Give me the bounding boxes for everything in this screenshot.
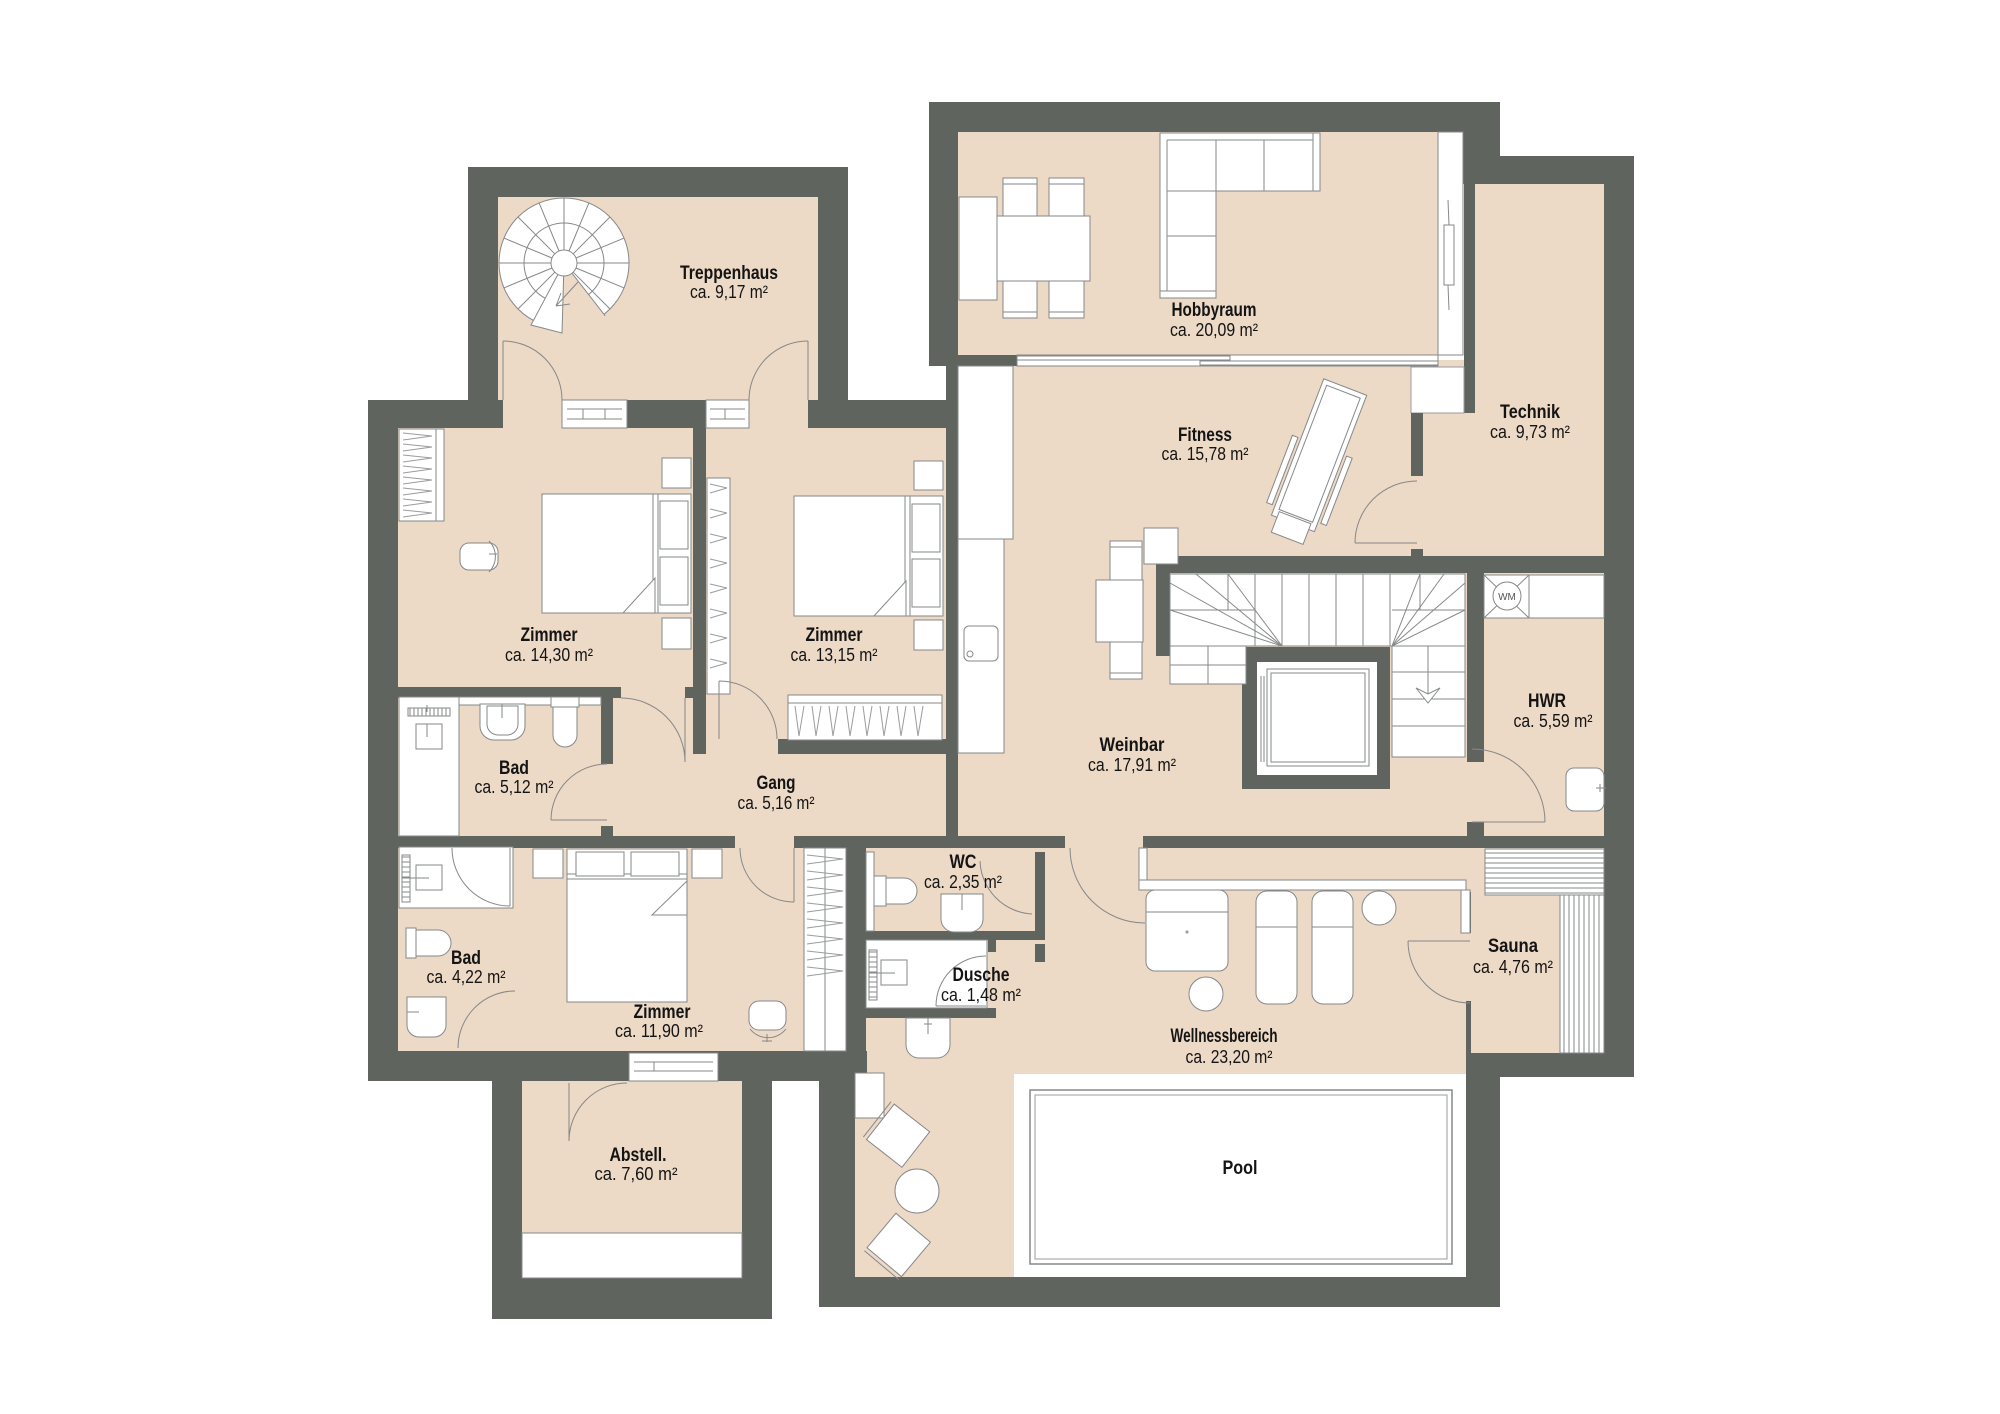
svg-text:Bad: Bad	[451, 948, 481, 969]
svg-text:Weinbar: Weinbar	[1100, 735, 1166, 756]
svg-text:Technik: Technik	[1500, 402, 1560, 423]
svg-text:ca. 5,59 m²: ca. 5,59 m²	[1514, 711, 1593, 731]
svg-text:ca. 4,76 m²: ca. 4,76 m²	[1473, 957, 1553, 977]
svg-text:ca. 13,15 m²: ca. 13,15 m²	[791, 645, 878, 665]
svg-text:ca. 2,35 m²: ca. 2,35 m²	[924, 872, 1002, 892]
svg-text:HWR: HWR	[1528, 691, 1566, 712]
svg-text:ca. 23,20 m²: ca. 23,20 m²	[1186, 1047, 1273, 1067]
svg-text:Hobbyraum: Hobbyraum	[1172, 300, 1257, 321]
svg-text:ca. 11,90 m²: ca. 11,90 m²	[615, 1021, 703, 1041]
svg-text:Pool: Pool	[1223, 1158, 1258, 1179]
svg-text:ca. 9,17 m²: ca. 9,17 m²	[690, 282, 768, 302]
svg-text:Abstell.: Abstell.	[610, 1145, 667, 1166]
svg-text:ca. 1,48 m²: ca. 1,48 m²	[941, 985, 1021, 1005]
svg-text:Gang: Gang	[757, 773, 796, 794]
svg-text:ca. 17,91 m²: ca. 17,91 m²	[1088, 755, 1176, 775]
svg-text:Sauna: Sauna	[1488, 936, 1538, 957]
svg-text:WM: WM	[1498, 592, 1516, 603]
svg-text:Bad: Bad	[499, 758, 529, 779]
svg-text:Dusche: Dusche	[953, 965, 1010, 986]
svg-text:Treppenhaus: Treppenhaus	[680, 263, 778, 284]
svg-text:Fitness: Fitness	[1178, 425, 1232, 446]
svg-text:ca. 4,22 m²: ca. 4,22 m²	[427, 967, 506, 987]
svg-text:ca. 7,60 m²: ca. 7,60 m²	[595, 1164, 678, 1184]
svg-text:Zimmer: Zimmer	[806, 625, 863, 646]
svg-text:WC: WC	[950, 852, 977, 873]
svg-text:ca. 9,73 m²: ca. 9,73 m²	[1490, 422, 1570, 442]
svg-text:ca. 20,09 m²: ca. 20,09 m²	[1170, 320, 1258, 340]
svg-text:ca. 14,30 m²: ca. 14,30 m²	[505, 645, 593, 665]
svg-text:ca. 5,16 m²: ca. 5,16 m²	[738, 793, 815, 813]
svg-text:Wellnessbereich: Wellnessbereich	[1171, 1026, 1278, 1047]
svg-text:Zimmer: Zimmer	[634, 1002, 691, 1023]
svg-text:ca. 5,12 m²: ca. 5,12 m²	[475, 777, 554, 797]
svg-text:Zimmer: Zimmer	[521, 625, 578, 646]
svg-text:ca. 15,78 m²: ca. 15,78 m²	[1162, 444, 1249, 464]
